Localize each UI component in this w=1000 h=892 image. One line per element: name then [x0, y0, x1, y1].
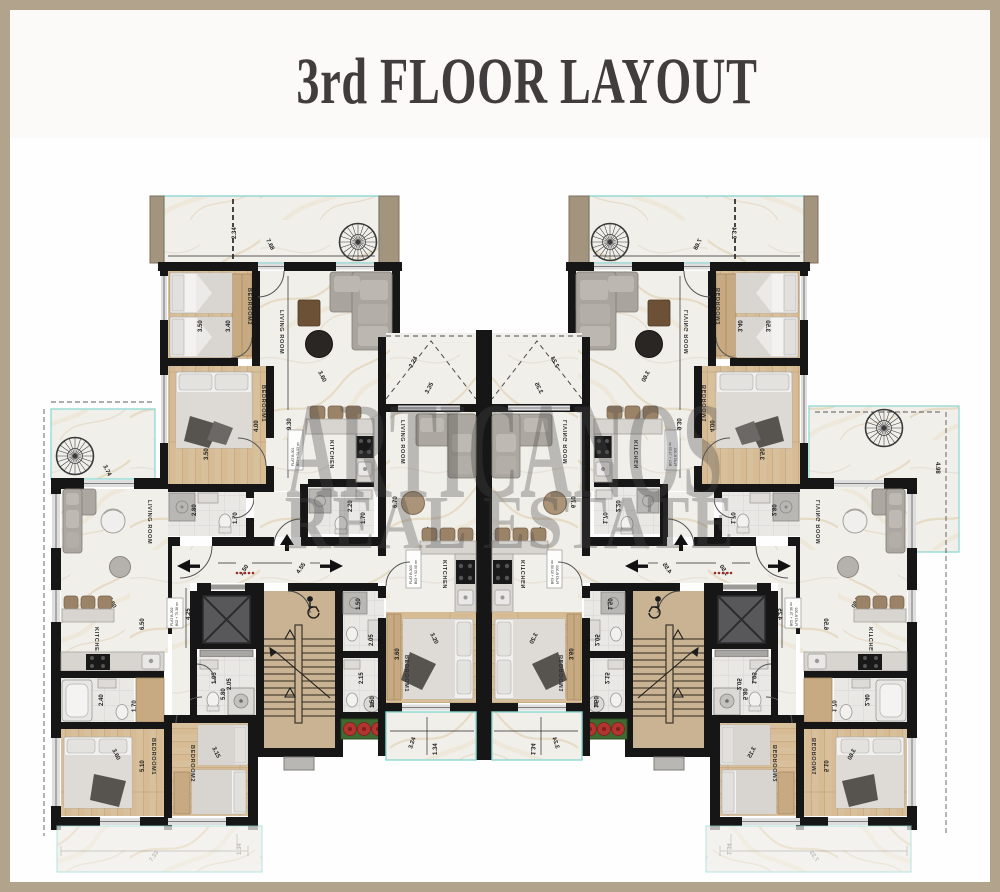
svg-text:3rd FLOOR LAYOUT: 3rd FLOOR LAYOUT [296, 45, 757, 118]
svg-text:4.98: 4.98 [934, 462, 940, 474]
svg-text:REAL ESTATE: REAL ESTATE [285, 481, 736, 565]
